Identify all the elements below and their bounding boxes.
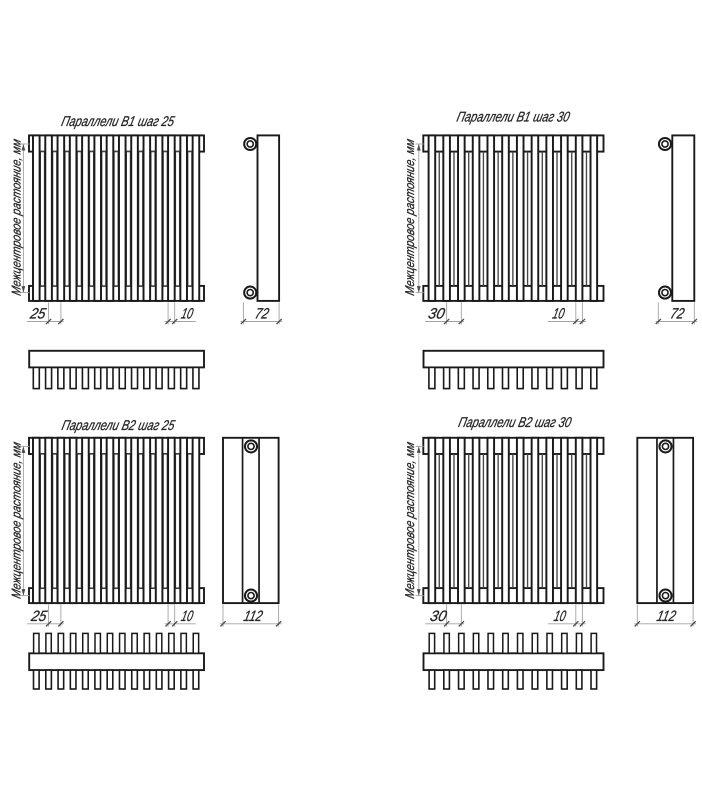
- svg-text:Параллели В2 шаг 30: Параллели В2 шаг 30: [457, 415, 573, 431]
- svg-text:Межцентровое растояние, мм: Межцентровое растояние, мм: [9, 137, 24, 297]
- svg-text:Межцентровое растояние, мм: Межцентровое растояние, мм: [402, 137, 417, 297]
- svg-text:Межцентровое растояние, мм: Межцентровое растояние, мм: [9, 440, 24, 600]
- svg-text:Параллели В1 шаг 30: Параллели В1 шаг 30: [455, 109, 571, 125]
- svg-text:Параллели В2 шаг 25: Параллели В2 шаг 25: [60, 418, 177, 434]
- svg-text:Межцентровое растояние, мм: Межцентровое растояние, мм: [402, 440, 417, 600]
- svg-text:Параллели В1 шаг 25: Параллели В1 шаг 25: [60, 114, 177, 130]
